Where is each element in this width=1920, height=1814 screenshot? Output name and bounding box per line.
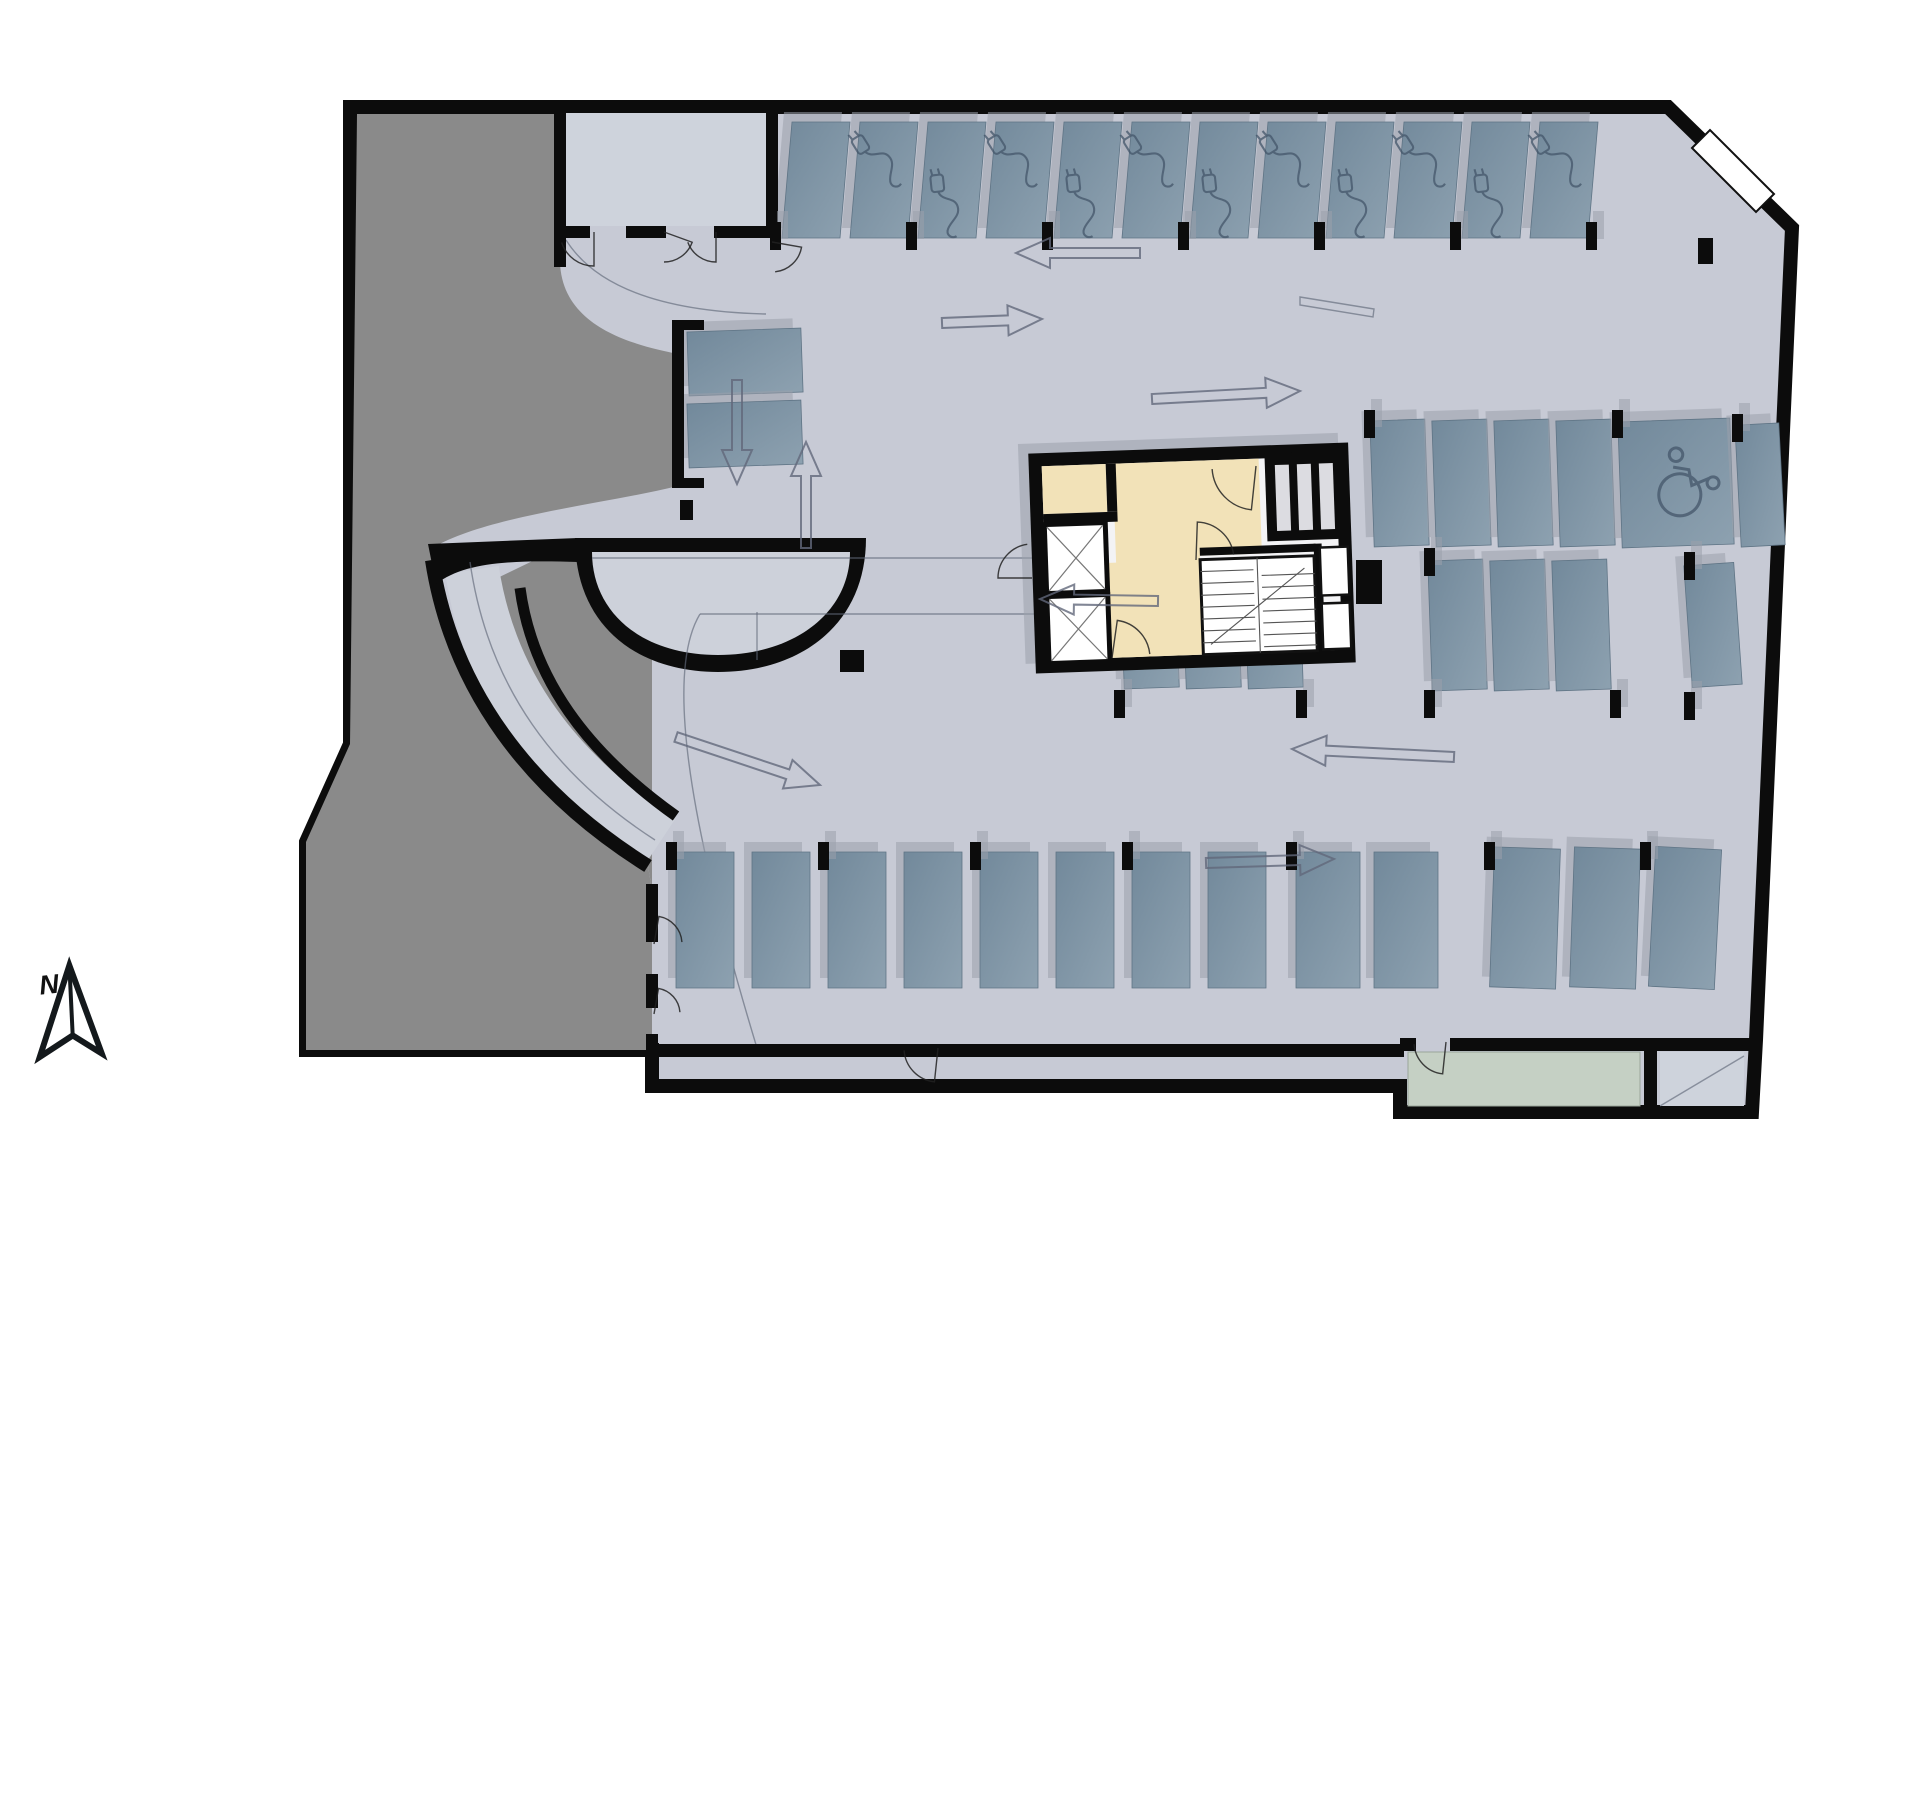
parking-space bbox=[1609, 408, 1734, 548]
parking-space-fill bbox=[687, 328, 803, 396]
column bbox=[1640, 842, 1651, 870]
wall-segment bbox=[714, 226, 772, 238]
parking-space bbox=[744, 842, 810, 988]
column bbox=[1586, 222, 1597, 250]
wall-segment bbox=[1644, 1046, 1657, 1108]
column bbox=[666, 842, 677, 870]
parking-space bbox=[842, 112, 918, 238]
parking-space-fill bbox=[1618, 418, 1734, 548]
parking-space bbox=[1250, 112, 1326, 238]
parking-space-fill bbox=[1370, 419, 1429, 547]
wall-segment bbox=[1698, 238, 1713, 264]
parking-space bbox=[972, 842, 1038, 988]
wall-segment bbox=[560, 226, 590, 238]
parking-space-fill bbox=[782, 122, 850, 238]
parking-space-fill bbox=[752, 852, 810, 988]
column bbox=[906, 222, 917, 250]
core-closet bbox=[1320, 547, 1350, 596]
parking-space bbox=[1547, 409, 1615, 547]
parking-space bbox=[1640, 836, 1722, 990]
wall-segment bbox=[1450, 1038, 1756, 1051]
parking-space bbox=[1481, 549, 1549, 691]
parking-space-fill bbox=[1530, 122, 1598, 238]
parking-space-fill bbox=[1122, 122, 1190, 238]
parking-space-fill bbox=[1552, 559, 1612, 691]
wall-segment bbox=[766, 107, 778, 238]
parking-space-fill bbox=[1428, 559, 1488, 691]
column bbox=[1296, 690, 1307, 718]
parking-space-fill bbox=[1394, 122, 1462, 238]
building-core-layer bbox=[1018, 432, 1356, 673]
column bbox=[770, 222, 781, 250]
column bbox=[970, 842, 981, 870]
parking-space bbox=[679, 390, 804, 468]
parking-space-fill bbox=[980, 852, 1038, 988]
floor-plan-canvas: N bbox=[0, 0, 1920, 1814]
wall-segment bbox=[672, 320, 684, 488]
parking-space-fill bbox=[828, 852, 886, 988]
wall-segment bbox=[554, 107, 566, 267]
wall-segment bbox=[1356, 560, 1382, 604]
parking-space bbox=[1386, 112, 1462, 238]
parking-space-fill bbox=[986, 122, 1054, 238]
parking-space-fill bbox=[1132, 852, 1190, 988]
parking-space bbox=[1485, 409, 1553, 547]
column bbox=[1122, 842, 1133, 870]
column bbox=[1610, 690, 1621, 718]
wall-segment bbox=[684, 478, 704, 488]
parking-space bbox=[1048, 842, 1114, 988]
duct-slot bbox=[1275, 465, 1291, 531]
column bbox=[1424, 548, 1435, 576]
column bbox=[1732, 414, 1743, 442]
column bbox=[1364, 410, 1375, 438]
parking-space bbox=[1114, 112, 1190, 238]
parking-space bbox=[668, 842, 734, 988]
wall-segment bbox=[680, 500, 693, 520]
parking-space-fill bbox=[1556, 419, 1615, 547]
column bbox=[1684, 692, 1695, 720]
side-room bbox=[566, 113, 766, 226]
north-label: N bbox=[38, 969, 61, 1001]
parking-space bbox=[1124, 842, 1190, 988]
parking-space bbox=[978, 112, 1054, 238]
core-closet bbox=[1322, 603, 1352, 650]
parking-space-fill bbox=[1208, 852, 1266, 988]
parking-space-fill bbox=[1648, 846, 1721, 989]
wall-segment bbox=[652, 1044, 1404, 1057]
parking-space bbox=[820, 842, 886, 988]
column bbox=[1484, 842, 1495, 870]
parking-space bbox=[1366, 842, 1438, 988]
core-wall bbox=[1106, 464, 1118, 512]
parking-space bbox=[1562, 837, 1641, 989]
parking-space bbox=[896, 842, 962, 988]
column bbox=[1178, 222, 1189, 250]
column bbox=[818, 842, 829, 870]
parking-space-fill bbox=[1374, 852, 1438, 988]
column bbox=[1042, 222, 1053, 250]
parking-space-fill bbox=[1056, 852, 1114, 988]
parking-space-fill bbox=[1490, 847, 1561, 989]
column bbox=[1612, 410, 1623, 438]
column bbox=[1424, 690, 1435, 718]
column bbox=[1450, 222, 1461, 250]
wall-segment bbox=[626, 226, 666, 238]
parking-space bbox=[1423, 409, 1491, 547]
column bbox=[1684, 552, 1695, 580]
building-core bbox=[1018, 432, 1356, 673]
parking-space-fill bbox=[850, 122, 918, 238]
parking-space bbox=[1543, 549, 1611, 691]
parking-space-fill bbox=[676, 852, 734, 988]
duct-slot bbox=[1297, 464, 1313, 530]
wall-segment bbox=[840, 650, 864, 672]
parking-space-fill bbox=[1490, 559, 1550, 691]
column bbox=[1314, 222, 1325, 250]
wall-segment bbox=[684, 320, 704, 330]
wall-segment bbox=[646, 1034, 658, 1050]
column bbox=[1114, 690, 1125, 718]
storage-room bbox=[1408, 1052, 1640, 1106]
parking-space-fill bbox=[1684, 562, 1742, 687]
core-lobby-room bbox=[1042, 464, 1108, 514]
parking-space-fill bbox=[1258, 122, 1326, 238]
north-compass: N bbox=[31, 963, 102, 1060]
parking-space-fill bbox=[1432, 419, 1491, 547]
parking-space-fill bbox=[1494, 419, 1553, 547]
parking-space-fill bbox=[687, 400, 803, 468]
parking-space bbox=[1522, 112, 1598, 238]
duct-slot bbox=[1319, 463, 1335, 529]
parking-space-fill bbox=[904, 852, 962, 988]
parking-space bbox=[1200, 842, 1266, 988]
parking-space-fill bbox=[1570, 847, 1641, 989]
